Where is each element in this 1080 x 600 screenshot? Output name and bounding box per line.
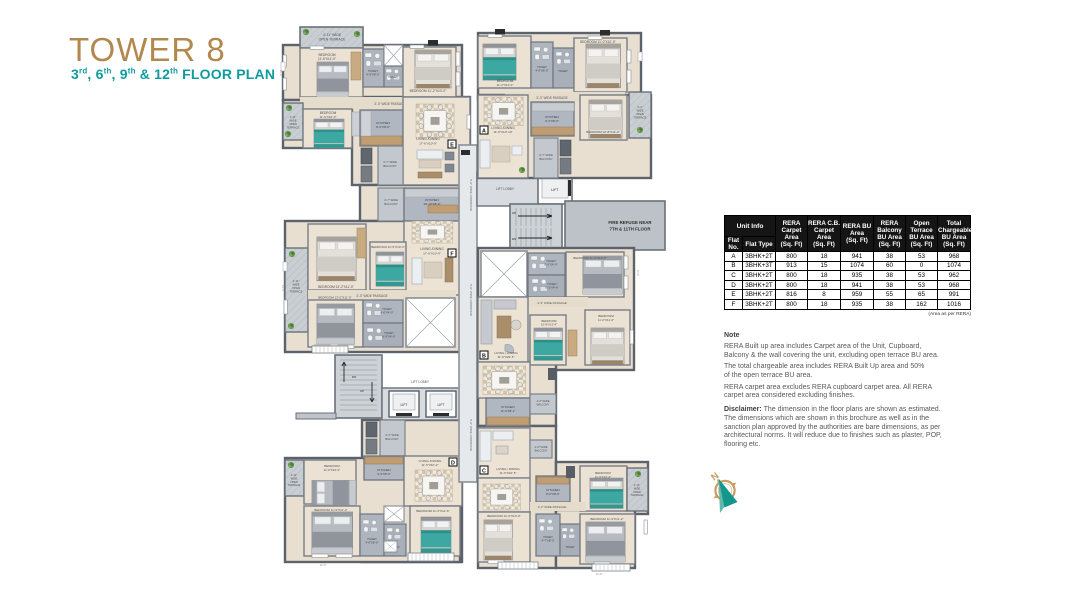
svg-text:4'-5"X8'-0": 4'-5"X8'-0" (365, 540, 378, 544)
svg-text:BEDROOM 13'-2"X11'-0": BEDROOM 13'-2"X11'-0" (318, 285, 353, 289)
svg-text:10'-8"X13'-4": 10'-8"X13'-4" (541, 323, 557, 327)
svg-text:BEDROOM 11'-2"X11'-6": BEDROOM 11'-2"X11'-6" (416, 509, 449, 513)
svg-text:10'-10"X8'-0": 10'-10"X8'-0" (423, 202, 440, 206)
svg-text:11'-0"X10'-0": 11'-0"X10'-0" (324, 468, 340, 472)
svg-text:D: D (451, 460, 455, 466)
svg-text:11'-0"X10'-10": 11'-0"X10'-10" (493, 130, 512, 134)
svg-text:C: C (482, 468, 486, 474)
svg-text:13'-2": 13'-2" (281, 285, 285, 292)
svg-text:11'-6"X10'-5": 11'-6"X10'-5" (499, 471, 516, 475)
svg-text:11'-9"X8'-1": 11'-9"X8'-1" (501, 409, 516, 413)
svg-text:WIDE: WIDE (634, 486, 641, 490)
svg-text:OPEN: OPEN (633, 490, 640, 494)
svg-text:BALCONY: BALCONY (385, 437, 399, 441)
svg-text:BEDROOM 11'-9"X11'-2": BEDROOM 11'-9"X11'-2" (314, 508, 347, 512)
svg-text:TERRACE: TERRACE (634, 116, 647, 120)
svg-text:DN: DN (512, 237, 516, 241)
svg-text:TOILET: TOILET (388, 75, 398, 79)
svg-text:BEDROOM 10'-5"X10'-0": BEDROOM 10'-5"X10'-0" (371, 245, 405, 249)
svg-text:BEDROOM 11'-0"X10'-0": BEDROOM 11'-0"X10'-0" (580, 40, 615, 44)
svg-text:11'-9"X10'-0": 11'-9"X10'-0" (595, 475, 611, 479)
svg-text:TERRACE: TERRACE (290, 290, 303, 294)
svg-text:4'-5"X8'-0": 4'-5"X8'-0" (366, 73, 379, 77)
svg-text:4'-11": 4'-11" (291, 473, 297, 477)
svg-text:6'-2"X4'-6": 6'-2"X4'-6" (545, 285, 558, 289)
svg-text:OPEN: OPEN (636, 112, 644, 116)
svg-text:LIFT: LIFT (551, 188, 559, 192)
svg-text:3'-3" WIDE PASSAGE: 3'-3" WIDE PASSAGE (374, 102, 405, 106)
svg-text:BEDROOM 10'-8"X11'-2": BEDROOM 10'-8"X11'-2" (586, 130, 619, 134)
svg-text:9'-3"X8'-0": 9'-3"X8'-0" (377, 472, 390, 476)
svg-text:OPEN TERRACE: OPEN TERRACE (319, 38, 346, 42)
svg-text:DN: DN (352, 375, 356, 379)
svg-text:9'-3"X8'-0": 9'-3"X8'-0" (545, 119, 559, 123)
svg-text:4'-7"X8'-0": 4'-7"X8'-0" (541, 538, 554, 542)
svg-text:BEDROOM 11'-0"X10'-0": BEDROOM 11'-0"X10'-0" (487, 514, 520, 518)
svg-text:LIFT: LIFT (401, 403, 408, 407)
svg-text:4'-11": 4'-11" (634, 483, 640, 487)
svg-text:BEDROOM 11'-2"X10'-0": BEDROOM 11'-2"X10'-0" (410, 89, 448, 93)
svg-text:LIFT LOBBY: LIFT LOBBY (496, 187, 515, 191)
svg-text:5'-0" WIDE CORRIDOR: 5'-0" WIDE CORRIDOR (469, 284, 473, 317)
svg-text:4'-1": 4'-1" (637, 105, 642, 109)
svg-text:BALCONY: BALCONY (535, 449, 548, 453)
svg-text:A: A (482, 128, 486, 134)
svg-text:BEDROOM 13'-2"X11'-0": BEDROOM 13'-2"X11'-0" (318, 296, 351, 300)
svg-text:11'-6"X11'-0": 11'-6"X11'-0" (318, 57, 336, 61)
svg-text:BALCONY: BALCONY (384, 202, 398, 206)
svg-text:11'-5"X10'-2": 11'-5"X10'-2" (421, 463, 438, 467)
svg-text:LIVING /DINING: LIVING /DINING (416, 137, 440, 141)
svg-text:TOILET: TOILET (565, 545, 575, 549)
svg-text:11'-6"X23'-5": 11'-6"X23'-5" (497, 355, 514, 359)
svg-text:11'-2"X11'-0": 11'-2"X11'-0" (598, 318, 614, 322)
svg-text:11'-6": 11'-6" (636, 270, 640, 276)
svg-text:11'-9"X10'-0": 11'-9"X10'-0" (319, 115, 336, 119)
svg-text:WIDE: WIDE (291, 476, 298, 480)
svg-text:6'-0"X4'-0": 6'-0"X4'-0" (382, 334, 395, 338)
svg-text:BEDROOM 11'-6"X10'-0": BEDROOM 11'-6"X10'-0" (573, 256, 606, 260)
svg-text:OPEN: OPEN (292, 286, 300, 290)
svg-text:BALCONY: BALCONY (537, 403, 550, 407)
svg-text:BALCONY: BALCONY (539, 157, 553, 161)
svg-text:17'-6"X10'-9": 17'-6"X10'-9" (419, 141, 437, 145)
svg-text:11'-9": 11'-9" (320, 563, 326, 567)
svg-text:3'-3" WIDE PASSAGE: 3'-3" WIDE PASSAGE (356, 294, 387, 298)
svg-text:5'-0" WIDE CORRIDOR: 5'-0" WIDE CORRIDOR (469, 419, 473, 452)
svg-text:TOILET: TOILET (558, 69, 568, 73)
svg-text:11'-9": 11'-9" (596, 572, 602, 576)
svg-text:TERRACE: TERRACE (631, 493, 644, 497)
svg-text:4'-3" WIDE: 4'-3" WIDE (534, 445, 547, 449)
svg-text:WIDE: WIDE (289, 119, 296, 123)
svg-text:3'-3" WIDE PASSAGE: 3'-3" WIDE PASSAGE (536, 96, 567, 100)
svg-text:LIFT LOBBY: LIFT LOBBY (411, 380, 430, 384)
svg-text:BEDROOM 11'-9"X11'-2": BEDROOM 11'-9"X11'-2" (590, 517, 623, 521)
svg-text:OPEN: OPEN (289, 122, 297, 126)
svg-text:B: B (482, 353, 486, 359)
svg-text:11'-2"X11'-0": 11'-2"X11'-0" (497, 83, 514, 87)
svg-text:E: E (450, 142, 454, 148)
svg-text:TERRACE: TERRACE (287, 126, 300, 130)
svg-text:8'-0"X4'-0": 8'-0"X4'-0" (544, 262, 557, 266)
svg-text:TERRACE: TERRACE (288, 483, 301, 487)
svg-text:UP: UP (360, 389, 364, 393)
svg-text:11'-2": 11'-2" (279, 70, 283, 76)
svg-text:LIVING /DINING: LIVING /DINING (420, 247, 444, 251)
svg-text:8'-0"X4'-0": 8'-0"X4'-0" (380, 310, 393, 314)
svg-text:4'-11" WIDE: 4'-11" WIDE (323, 33, 342, 37)
svg-text:9'-3"X8'-0": 9'-3"X8'-0" (376, 125, 390, 129)
svg-text:LIFT: LIFT (438, 403, 445, 407)
svg-text:4'-5"X8'-0": 4'-5"X8'-0" (535, 68, 548, 72)
svg-text:5'-0" WIDE CORRIDOR: 5'-0" WIDE CORRIDOR (469, 179, 473, 212)
svg-text:3'-3" WIDE PASSAGE: 3'-3" WIDE PASSAGE (537, 301, 567, 305)
svg-text:OPEN: OPEN (290, 480, 297, 484)
svg-text:UP: UP (512, 211, 516, 215)
svg-text:7TH & 11TH FLOOR: 7TH & 11TH FLOOR (610, 227, 652, 232)
svg-text:WIDE: WIDE (292, 283, 299, 287)
svg-text:WIDE: WIDE (636, 109, 643, 113)
svg-text:4'-3" WIDE: 4'-3" WIDE (536, 399, 549, 403)
svg-text:3'-3" WIDE PASSAGE: 3'-3" WIDE PASSAGE (538, 505, 567, 509)
svg-text:4'-11": 4'-11" (293, 279, 300, 283)
svg-text:FIRE REFUGE NEAR: FIRE REFUGE NEAR (608, 220, 652, 225)
svg-text:17'-6"X10'-9": 17'-6"X10'-9" (423, 251, 441, 255)
svg-text:8'-0"X8'-6": 8'-0"X8'-6" (546, 492, 559, 496)
svg-text:4'-11": 4'-11" (290, 115, 297, 119)
svg-text:BALCONY: BALCONY (383, 164, 397, 168)
